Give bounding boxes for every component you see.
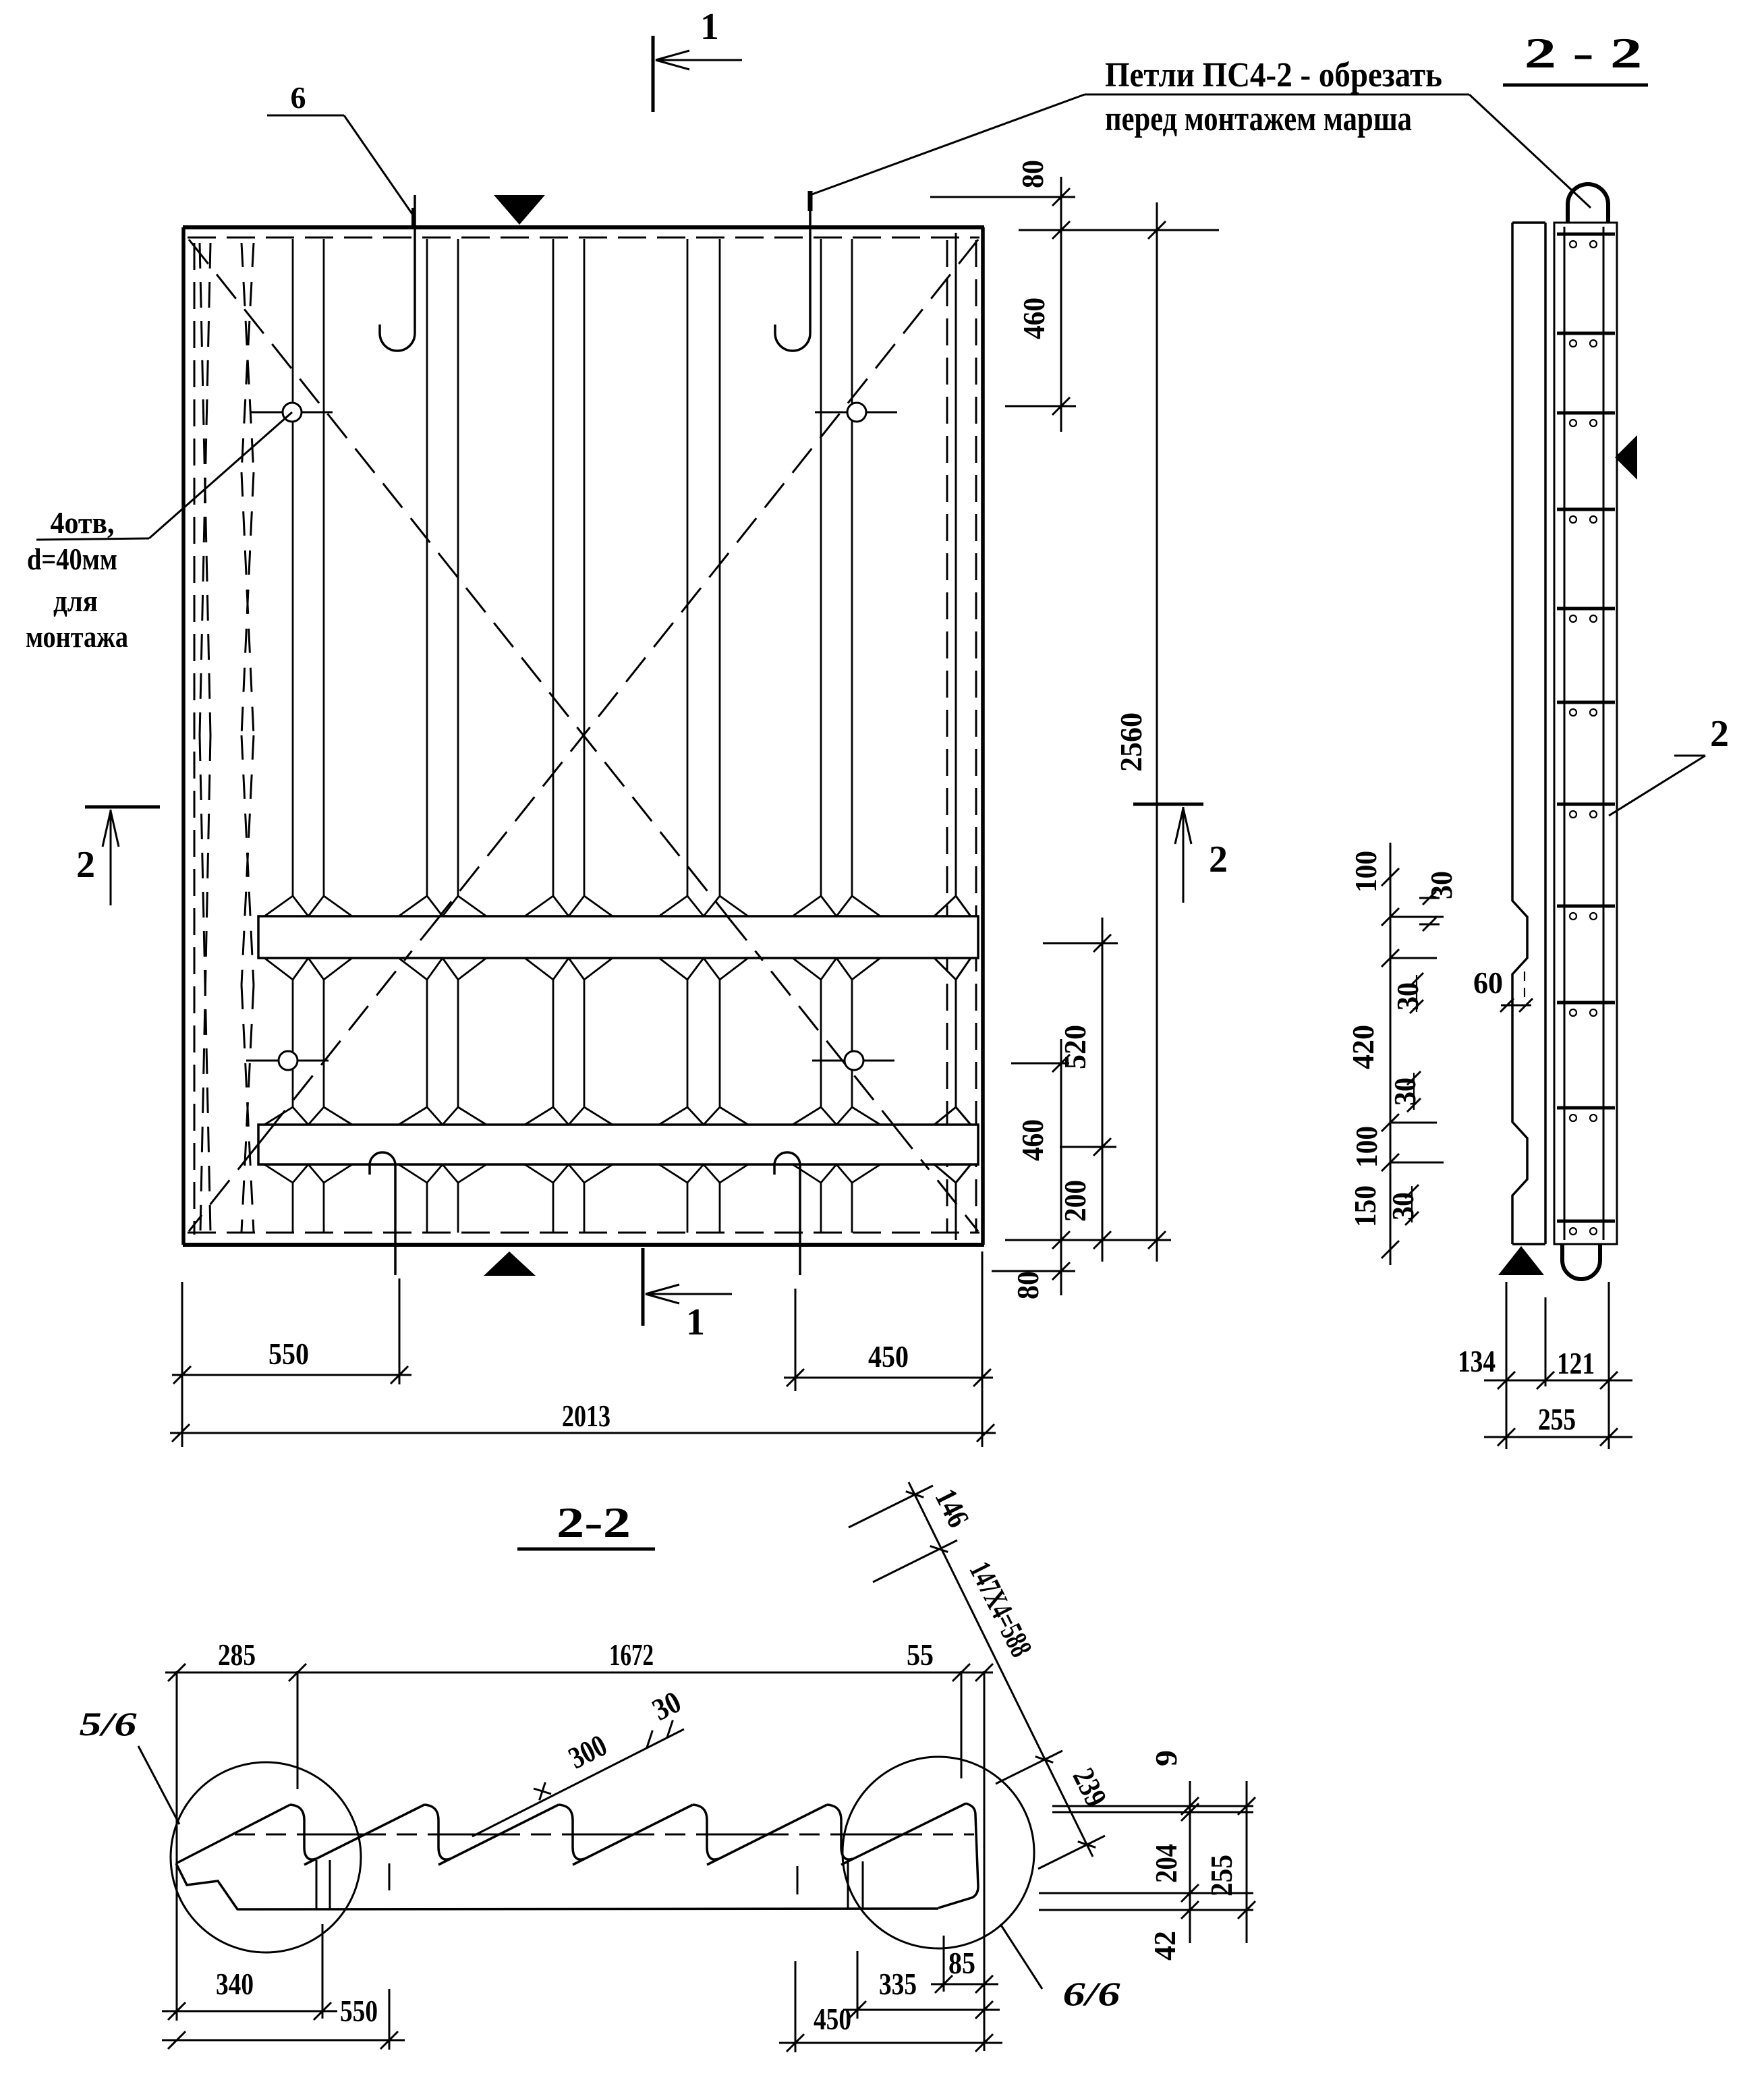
svg-text:монтажа: монтажа xyxy=(26,619,128,654)
svg-text:Петли ПС4-2 - обрезать: Петли ПС4-2 - обрезать xyxy=(1105,56,1442,94)
svg-text:2: 2 xyxy=(1209,839,1228,880)
svg-text:255: 255 xyxy=(1204,1855,1239,1896)
svg-text:520: 520 xyxy=(1058,1025,1092,1069)
svg-text:335: 335 xyxy=(879,1967,917,2001)
svg-text:550: 550 xyxy=(268,1337,309,1371)
svg-text:100: 100 xyxy=(1349,1126,1384,1168)
svg-text:30: 30 xyxy=(1388,1077,1422,1106)
svg-text:2-2: 2-2 xyxy=(557,1498,631,1546)
svg-text:340: 340 xyxy=(216,1967,254,2001)
svg-text:420: 420 xyxy=(1346,1025,1380,1069)
svg-text:460: 460 xyxy=(1017,298,1051,339)
svg-text:80: 80 xyxy=(1015,160,1050,188)
svg-text:d=40мм: d=40мм xyxy=(27,542,117,576)
svg-text:60: 60 xyxy=(1473,965,1503,1000)
svg-text:для: для xyxy=(53,584,98,618)
svg-text:2560: 2560 xyxy=(1114,712,1148,772)
svg-text:85: 85 xyxy=(948,1946,975,1980)
svg-text:2 - 2: 2 - 2 xyxy=(1525,29,1643,77)
svg-text:1672: 1672 xyxy=(609,1637,654,1672)
svg-text:30: 30 xyxy=(1424,871,1458,899)
svg-text:42: 42 xyxy=(1147,1931,1182,1961)
svg-text:4отв,: 4отв, xyxy=(51,505,115,540)
svg-text:30: 30 xyxy=(1386,1192,1420,1220)
svg-text:30: 30 xyxy=(1390,982,1425,1011)
svg-text:550: 550 xyxy=(340,1994,378,2028)
svg-text:460: 460 xyxy=(1015,1119,1050,1161)
svg-text:200: 200 xyxy=(1058,1180,1092,1222)
svg-text:6: 6 xyxy=(291,80,306,115)
svg-text:150: 150 xyxy=(1348,1185,1382,1227)
svg-text:80: 80 xyxy=(1011,1271,1045,1299)
svg-text:1: 1 xyxy=(686,1301,705,1343)
svg-text:255: 255 xyxy=(1538,1402,1576,1436)
svg-text:204: 204 xyxy=(1149,1844,1183,1883)
svg-text:1: 1 xyxy=(700,6,719,48)
svg-text:55: 55 xyxy=(907,1637,934,1672)
svg-text:450: 450 xyxy=(868,1339,909,1374)
svg-text:9: 9 xyxy=(1149,1750,1183,1766)
svg-text:6/6: 6/6 xyxy=(1063,1975,1120,2013)
svg-text:134: 134 xyxy=(1458,1344,1496,1378)
svg-text:перед монтажем марша: перед монтажем марша xyxy=(1105,100,1412,138)
svg-text:5/6: 5/6 xyxy=(80,1705,137,1743)
svg-text:450: 450 xyxy=(814,2002,851,2036)
svg-text:2013: 2013 xyxy=(562,1399,610,1433)
svg-text:2: 2 xyxy=(1710,713,1729,755)
svg-text:285: 285 xyxy=(218,1637,256,1672)
svg-text:100: 100 xyxy=(1348,851,1383,893)
svg-text:2: 2 xyxy=(76,844,95,886)
svg-text:121: 121 xyxy=(1557,1346,1595,1380)
